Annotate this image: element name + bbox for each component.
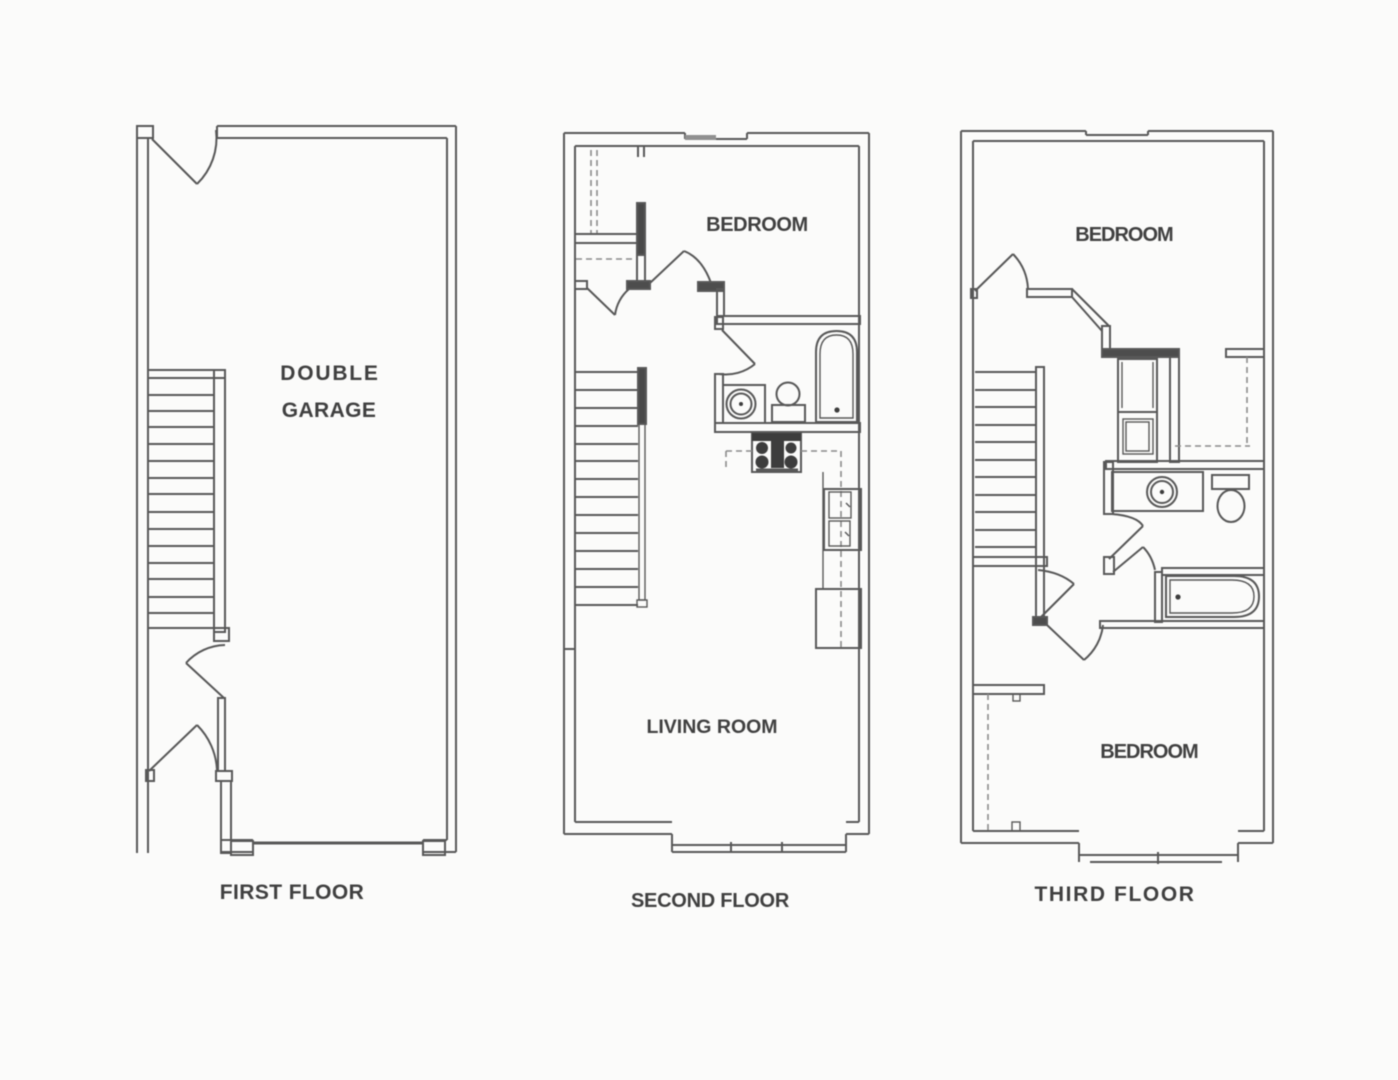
svg-text:BEDROOM: BEDROOM [706,214,808,236]
svg-text:BEDROOM: BEDROOM [1100,741,1198,763]
svg-text:GARAGE: GARAGE [282,399,377,422]
svg-text:FIRST FLOOR: FIRST FLOOR [220,881,364,904]
svg-text:THIRD FLOOR: THIRD FLOOR [1034,883,1195,906]
svg-text:BEDROOM: BEDROOM [1075,224,1173,246]
svg-text:SECOND FLOOR: SECOND FLOOR [631,890,790,912]
svg-text:LIVING ROOM: LIVING ROOM [646,716,777,738]
svg-text:DOUBLE: DOUBLE [280,362,379,385]
